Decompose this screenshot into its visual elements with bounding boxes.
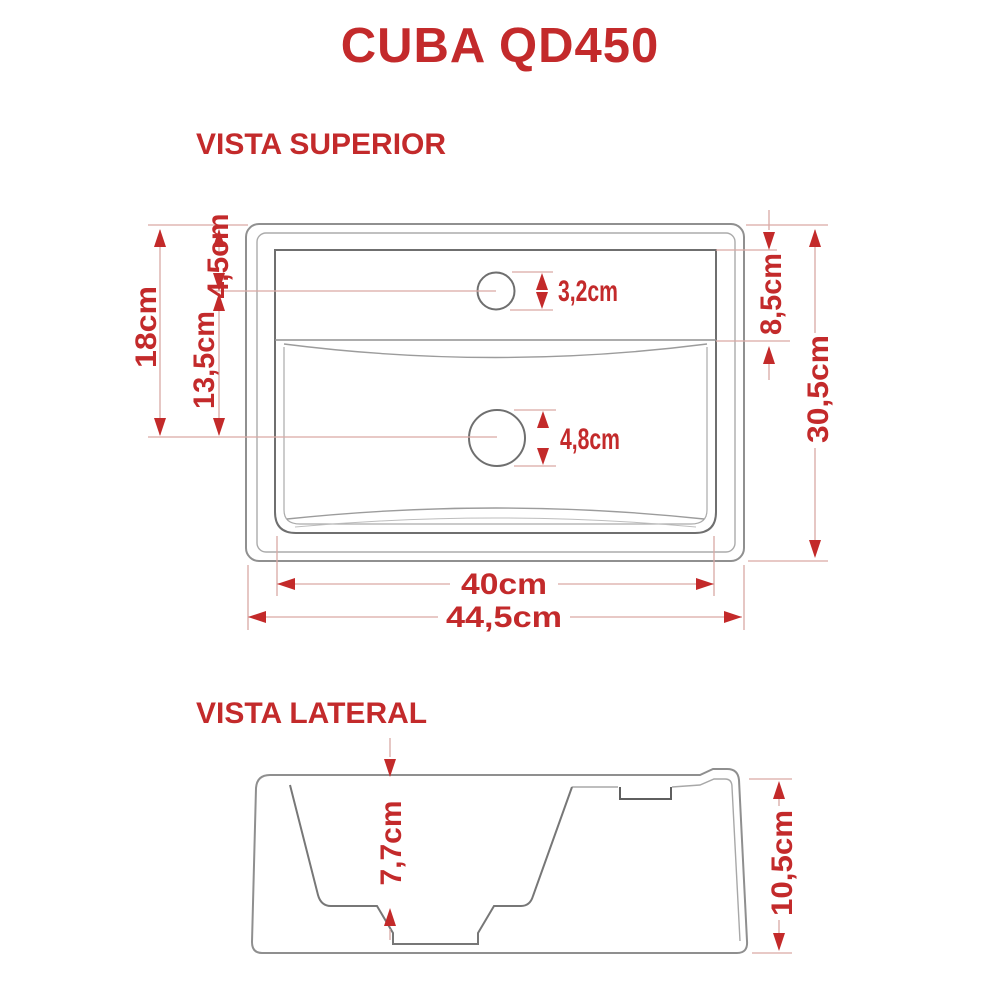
arrow-7-7cm-bottom-icon (384, 908, 396, 926)
top-view-arrowheads (154, 229, 821, 623)
basin-back-wall-curve (284, 344, 707, 358)
arrow-18cm-down-icon (154, 418, 166, 436)
arrow-4-8cm-down-icon (537, 448, 549, 465)
dim-overall-depth: 30,5cm (802, 335, 835, 443)
arrow-18cm-up-icon (154, 229, 166, 247)
basin-inner-wall-outline (284, 347, 707, 524)
side-outer-profile (252, 769, 747, 953)
arrow-44-5cm-left-icon (248, 611, 266, 623)
dim-deck-depth: 8,5cm (755, 253, 788, 335)
dim-side-overall-height: 10,5cm (766, 810, 799, 916)
arrow-44-5cm-right-icon (724, 611, 742, 623)
arrow-10-5cm-up-icon (773, 781, 785, 799)
technical-drawing: 18cm 4,5cm 13,5cm 3,2cm 4,8cm 8,5cm 30,5… (0, 0, 1000, 1000)
arrow-30-5cm-up-icon (809, 229, 821, 247)
dim-drain-hole-diameter: 4,8cm (560, 423, 620, 456)
arrow-40cm-right-icon (696, 578, 714, 590)
basin-front-wall-curve (287, 508, 704, 519)
top-view-drawing (246, 224, 744, 561)
dim-faucet-center-offset: 4,5cm (202, 214, 235, 299)
dim-basin-depth: 7,7cm (375, 801, 408, 886)
arrow-13-5cm-down-icon (213, 418, 225, 436)
sink-rim-outline (257, 233, 735, 552)
dim-faucet-hole-diameter: 3,2cm (558, 275, 618, 308)
side-inner-rim-line (572, 779, 740, 941)
sink-outer-outline (246, 224, 744, 561)
arrow-40cm-left-icon (277, 578, 295, 590)
dim-overall-width: 44,5cm (446, 601, 562, 634)
dim-basin-width: 40cm (461, 568, 547, 601)
side-view-arrowheads (384, 759, 785, 951)
basin-front-wall-curve-inner (295, 518, 696, 527)
top-view-dimension-labels: 18cm 4,5cm 13,5cm 3,2cm 4,8cm 8,5cm 30,5… (130, 214, 835, 635)
diagram-page: CUBA QD450 VISTA SUPERIOR VISTA LATERAL (0, 0, 1000, 1000)
arrow-8-5cm-top-icon (763, 232, 775, 250)
side-view-drawing (252, 769, 747, 953)
top-view-dimension-lines (148, 210, 828, 630)
arrow-10-5cm-down-icon (773, 933, 785, 951)
arrow-3-2cm-down-icon (536, 292, 548, 309)
arrow-4-8cm-up-icon (537, 411, 549, 428)
dim-faucet-to-drain: 13,5cm (188, 311, 221, 409)
faucet-hole-side-notch (620, 787, 671, 799)
drain-hole (469, 410, 525, 466)
arrow-30-5cm-down-icon (809, 540, 821, 558)
basin-side-profile (290, 785, 572, 944)
arrow-8-5cm-bottom-icon (763, 346, 775, 364)
arrow-3-2cm-up-icon (536, 273, 548, 290)
dim-overall-height: 18cm (130, 286, 163, 368)
bowl-outline (275, 250, 716, 533)
